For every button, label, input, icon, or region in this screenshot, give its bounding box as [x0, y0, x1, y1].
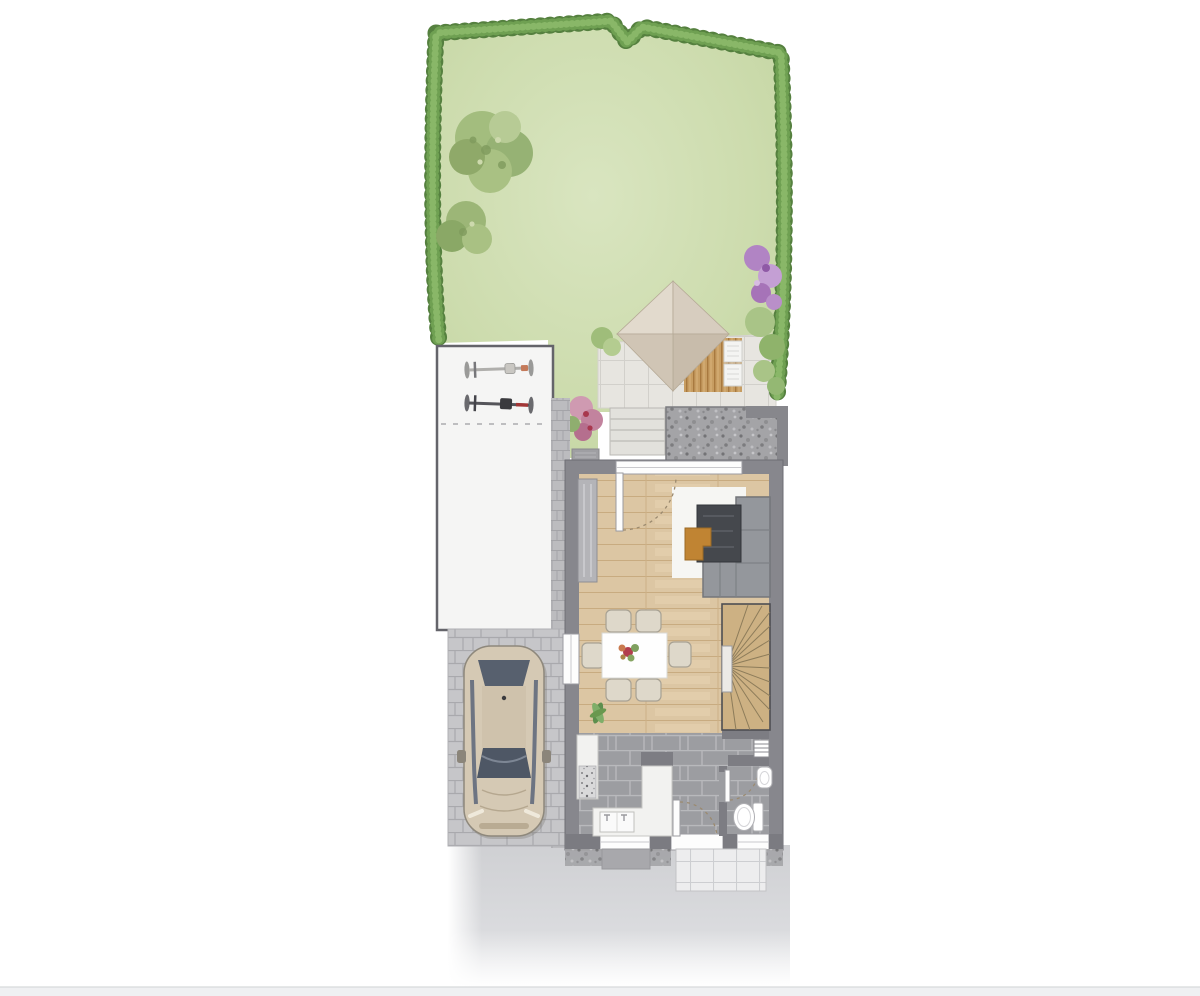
stair-newel: [722, 646, 732, 692]
entry-door-leaf: [616, 473, 623, 531]
wardrobe: [578, 479, 597, 582]
front-door-leaf: [673, 800, 680, 836]
lounger-1: [724, 341, 742, 362]
garden-steps: [610, 408, 665, 455]
dining-table: [602, 633, 667, 678]
car-mirror-right: [542, 750, 551, 763]
shed: [437, 346, 553, 630]
car-roof: [482, 686, 526, 748]
lounger-2: [724, 364, 742, 386]
wc-door-leaf: [725, 770, 730, 802]
car-antenna: [502, 696, 506, 700]
walkway-tiles: [676, 849, 766, 891]
staircase: [722, 604, 770, 730]
car-rear-window: [478, 660, 530, 686]
toilet: [734, 803, 764, 831]
gravel-bed: [666, 406, 788, 466]
site-plan-illustration: [0, 0, 1200, 996]
car: [457, 646, 551, 839]
site-plan-canvas: [0, 0, 1200, 996]
entry-mat: [602, 849, 650, 869]
front-pavement: [0, 845, 1200, 996]
car-mirror-left: [457, 750, 466, 763]
house: [563, 460, 783, 850]
kitchen-peninsula-wall: [641, 752, 673, 766]
car-grille: [479, 823, 529, 829]
cooktop: [579, 766, 596, 798]
street-edge-band: [0, 987, 1200, 996]
hand-basin: [757, 767, 772, 788]
